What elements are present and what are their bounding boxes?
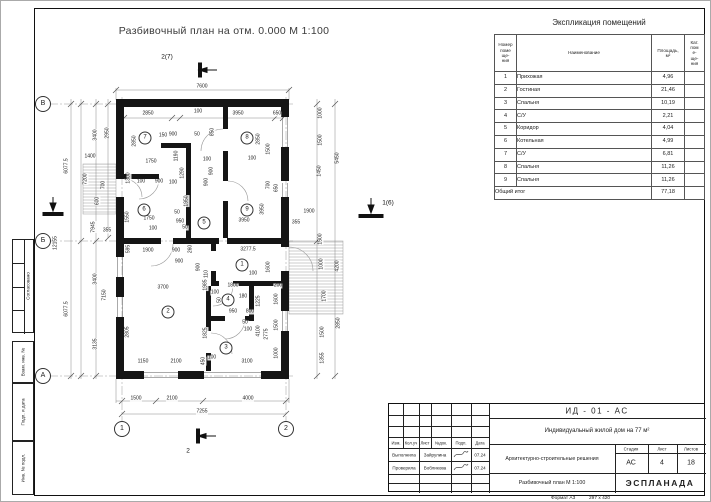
company-logo: ЭСПЛАНАДА xyxy=(626,478,695,488)
schedule-cell: Коридор xyxy=(517,123,652,136)
schedule-cell: 4,04 xyxy=(652,123,685,136)
col-ndok: №док. xyxy=(435,440,447,445)
schedule-total-label: Общий итог xyxy=(495,187,652,200)
stamp-approved-label: Согласовано xyxy=(26,272,31,300)
sheets-value: 18 xyxy=(687,460,695,467)
schedule-cell: Спальня xyxy=(517,174,652,187)
schedule-row: 7С/У6,81 xyxy=(495,148,705,161)
schedule-cell: 4,99 xyxy=(652,135,685,148)
stage-label: Стадия xyxy=(624,446,639,451)
col-koluch: Кол.уч xyxy=(405,440,418,445)
schedule-cell: 7 xyxy=(495,148,517,161)
checked-role: Проверила xyxy=(392,465,415,470)
schedule-cell: 2 xyxy=(495,84,517,97)
schedule-cell: 8 xyxy=(495,161,517,174)
schedule-row: 5Коридор4,04 xyxy=(495,123,705,136)
title-block: Изм. Кол.уч Лист №док. Подп. Дата Выполн… xyxy=(388,403,705,492)
schedule-header-category: Кат. пом е- ще- ния xyxy=(685,35,705,72)
stamp-inventory-number-label: Инв. № подл. xyxy=(21,454,26,483)
stage-value: АС xyxy=(626,460,636,467)
schedule-cell: С/У xyxy=(517,110,652,123)
schedule-cell: Гостиная xyxy=(517,84,652,97)
schedule-title: Экспликация помещений xyxy=(494,18,704,27)
schedule-cell: 4 xyxy=(495,110,517,123)
schedule-cell: 5 xyxy=(495,123,517,136)
performed-name: Зайрулина xyxy=(424,452,446,457)
sheets-label: Листов xyxy=(684,446,698,451)
stamp-replacement-inv: Взам. инв. № xyxy=(12,341,34,383)
drawing-title: Разбивочный план М 1:100 xyxy=(519,480,586,486)
schedule-header-area: Площадь, м² xyxy=(652,35,685,72)
col-list: Лист xyxy=(420,440,429,445)
performed-role: Выполнила xyxy=(392,452,416,457)
project-name: Индивидуальный жилой дом на 77 м² xyxy=(545,428,650,434)
schedule-row: 9Спальня11,26 xyxy=(495,174,705,187)
schedule-cell: 6 xyxy=(495,135,517,148)
col-izm: Изм. xyxy=(392,440,401,445)
schedule-cell: С/У xyxy=(517,148,652,161)
schedule-cell xyxy=(685,72,705,85)
signature-mark xyxy=(453,449,469,459)
format-size: 297 х 420 xyxy=(589,496,610,501)
schedule-total-value: 77,18 xyxy=(652,187,685,200)
drawing-sheet: 7600285010039506506077.5121556077.534002… xyxy=(0,0,711,502)
plan-title: Разбивочный план на отм. 0.000 М 1:100 xyxy=(89,25,359,37)
stamp-replacement-inv-label: Взам. инв. № xyxy=(21,348,26,376)
schedule-cell: 4,96 xyxy=(652,72,685,85)
schedule-cell: 6,81 xyxy=(652,148,685,161)
schedule-row: 6Котельная4,99 xyxy=(495,135,705,148)
schedule-cell xyxy=(685,110,705,123)
schedule-cell xyxy=(685,97,705,110)
schedule-cell xyxy=(685,135,705,148)
sheet-label: Лист xyxy=(657,446,666,451)
stamp-signature-date-label: Подп. и дата xyxy=(21,398,26,425)
schedule-cell xyxy=(685,161,705,174)
format-label: Формат А3 xyxy=(551,496,575,501)
schedule-row: 4С/У2,21 xyxy=(495,110,705,123)
schedule-cell: Прихожая xyxy=(517,72,652,85)
signature-mark xyxy=(453,462,469,472)
schedule-header-name: Наименование xyxy=(517,35,652,72)
col-podp: Подп. xyxy=(455,440,466,445)
schedule-row: 3Спальня10,19 xyxy=(495,97,705,110)
schedule-cell: 21,46 xyxy=(652,84,685,97)
schedule-cell xyxy=(685,84,705,97)
schedule-row: 1Прихожая4,96 xyxy=(495,72,705,85)
schedule-cell xyxy=(685,174,705,187)
schedule-cell xyxy=(685,187,705,200)
schedule-cell xyxy=(685,123,705,136)
stamp-approved: Согласовано xyxy=(12,239,34,333)
schedule-cell: 11,26 xyxy=(652,161,685,174)
schedule-cell: Котельная xyxy=(517,135,652,148)
room-schedule-table: Номер поме ще- ния Наименование Площадь,… xyxy=(494,34,705,200)
schedule-cell: 1 xyxy=(495,72,517,85)
schedule-cell: 2,21 xyxy=(652,110,685,123)
stamp-inventory-number: Инв. № подл. xyxy=(12,441,34,495)
schedule-row: 2Гостиная21,46 xyxy=(495,84,705,97)
performed-date: 07.24 xyxy=(474,452,485,457)
schedule-cell: Спальня xyxy=(517,97,652,110)
schedule-cell: 3 xyxy=(495,97,517,110)
sheet-value: 4 xyxy=(660,460,664,467)
schedule-row: 8Спальня11,26 xyxy=(495,161,705,174)
checked-date: 07.24 xyxy=(474,465,485,470)
schedule-cell: Спальня xyxy=(517,161,652,174)
schedule-cell: 9 xyxy=(495,174,517,187)
schedule-cell xyxy=(685,148,705,161)
stamp-signature-date: Подп. и дата xyxy=(12,383,34,441)
schedule-total-row: Общий итог77,18 xyxy=(495,187,705,200)
doc-code: ИД - 01 - АС xyxy=(565,407,628,416)
section-title: Архитектурно-строительные решения xyxy=(505,456,598,462)
schedule-header-number: Номер поме ще- ния xyxy=(495,35,517,72)
schedule-cell: 11,26 xyxy=(652,174,685,187)
checked-name: Вобликова xyxy=(424,465,446,470)
col-data: Дата xyxy=(475,440,484,445)
schedule-cell: 10,19 xyxy=(652,97,685,110)
